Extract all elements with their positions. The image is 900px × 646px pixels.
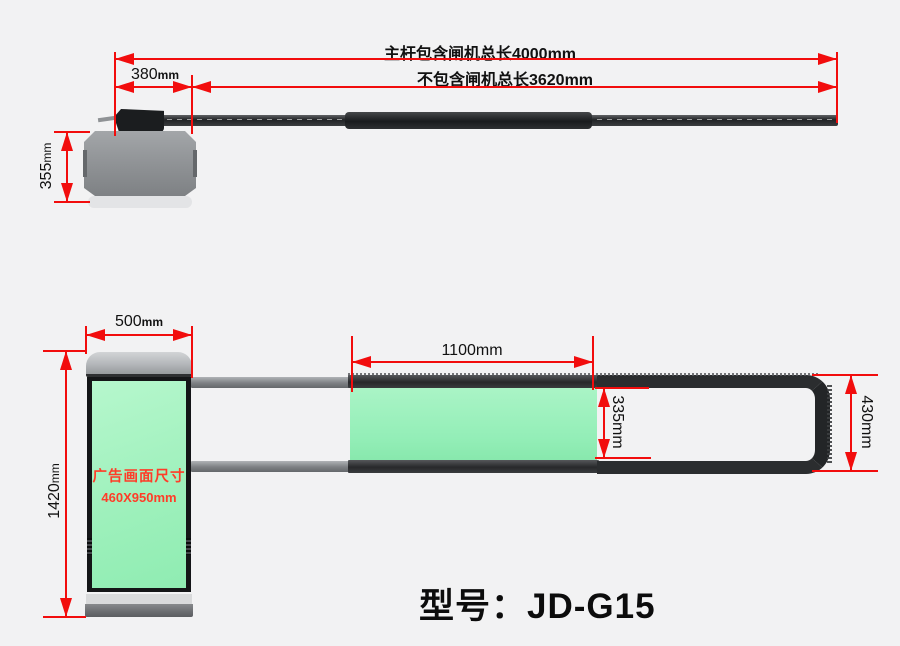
top-view-machine-housing (84, 131, 196, 196)
dim-cabinet-width-label: 500mm (99, 313, 179, 331)
front-arm-end-frame (597, 375, 830, 474)
arrowhead-up-icon (60, 351, 72, 370)
front-arm-bottom-rail-sleeve (348, 460, 599, 473)
dim-total-length-line (115, 58, 837, 60)
front-arm-bottom-rail-inner (191, 461, 351, 472)
cabinet-left-vent (87, 538, 92, 555)
extension-line (191, 326, 193, 378)
arrowhead-right-icon (173, 81, 192, 93)
dim-arm-length-line (192, 86, 837, 88)
housing-shadow (88, 196, 192, 208)
arrowhead-left-icon (115, 81, 134, 93)
dim-ad-panel-length-line (352, 361, 593, 363)
arrowhead-up-icon (61, 132, 73, 151)
arrowhead-left-icon (352, 356, 371, 368)
front-arm-top-rail-inner (191, 377, 351, 388)
ad-size-value: 460X950mm (101, 490, 176, 505)
barrier-gate-spec-diagram: 主杆包含闸机总长4000mm 380mm 不包含闸机总长3620mm 355mm (0, 0, 900, 646)
model-number-label: 型号：JD-G15 (419, 578, 656, 629)
extension-line (592, 336, 594, 390)
arrowhead-right-icon (173, 329, 192, 341)
arrowhead-left-icon (115, 53, 134, 65)
top-view-arm-bracket (114, 109, 164, 132)
dim-ad-panel-length-label: 1100mm (402, 342, 542, 360)
cabinet-right-vent (186, 538, 191, 555)
arm-ad-panel (350, 388, 597, 460)
extension-line (114, 52, 116, 136)
arrowhead-left-icon (86, 329, 105, 341)
arrowhead-up-icon (845, 375, 857, 394)
arm-end-rubber-edge (827, 385, 832, 464)
front-arm-top-rail-sleeve (348, 375, 599, 388)
arm-top-teeth (348, 373, 818, 376)
arrowhead-down-icon (61, 183, 73, 202)
cabinet-base-trim (86, 594, 192, 604)
extension-line (351, 336, 353, 392)
housing-right-tab (193, 150, 197, 177)
cabinet-cap (86, 352, 192, 377)
arrowhead-down-icon (60, 598, 72, 617)
arrowhead-left-icon (192, 81, 211, 93)
cabinet-ad-panel: 广告画面尺寸 460X950mm (92, 381, 186, 588)
extension-line (836, 52, 838, 123)
arrowhead-right-icon (818, 53, 837, 65)
cabinet-body: 广告画面尺寸 460X950mm (87, 377, 191, 592)
arrowhead-down-icon (845, 452, 857, 471)
housing-left-tab (83, 150, 87, 177)
arrowhead-right-icon (574, 356, 593, 368)
dim-cabinet-height-line (65, 350, 67, 617)
extension-line (191, 75, 193, 134)
cabinet-base (85, 604, 193, 617)
arrowhead-right-icon (818, 81, 837, 93)
dim-total-length-label: 主杆包含闸机总长4000mm (340, 40, 620, 64)
ad-size-caption: 广告画面尺寸 (93, 465, 186, 486)
top-view-arm-sleeve (345, 112, 592, 129)
